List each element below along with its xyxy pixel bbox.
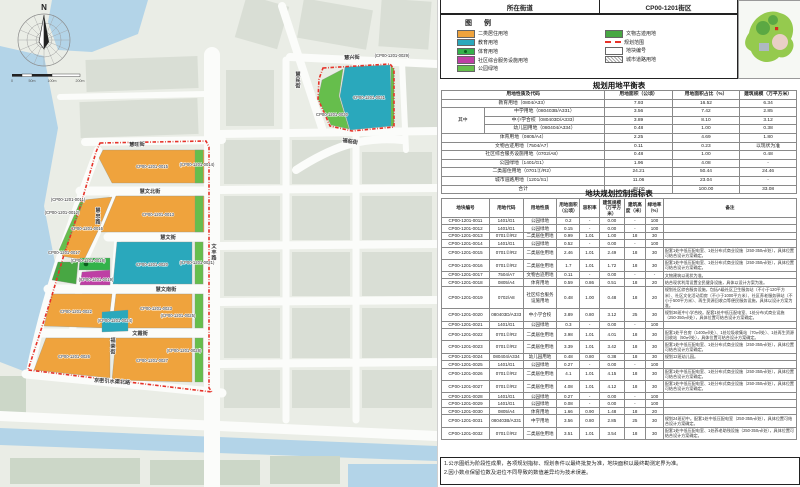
block-code-label: CP00-1201-0030 bbox=[316, 112, 349, 117]
block-code-label: CP00-1201-0031 bbox=[353, 95, 386, 100]
legend-swatch-icon bbox=[605, 56, 623, 64]
district-minimap bbox=[738, 0, 800, 79]
legend-swatch-icon bbox=[457, 48, 475, 56]
footnote-line: 1.公示图纸为阶段性成果，各项规划指标、规划条件以最终批复为准，地块面积以最终勘… bbox=[444, 460, 796, 469]
block-code-label: (CP00-1201-0019) bbox=[79, 277, 114, 282]
balance-table: 用地性质及代码用地面积（公顷）用地面积占比（%）建筑规模（万平方米）教育用地（0… bbox=[441, 90, 797, 194]
table-row: CP00-1201-00320701②/R2二类居住用地3.511.013.54… bbox=[442, 427, 797, 439]
legend-label: 规划范围 bbox=[624, 39, 644, 46]
table-row: CP00-1201-00177504/A7文物古迹用地0.11-0.00--文物… bbox=[442, 271, 797, 279]
legend-label: 社区综合服务设施用地 bbox=[478, 57, 528, 64]
legend-item: 体育用地 bbox=[457, 48, 589, 56]
planning-sheet: N 050m100m200m 慧旺街慧文北街慧文街慧文南街文霞街京密引水渠北路文… bbox=[0, 0, 800, 487]
legend: 图 例 二类居住用地教育用地体育用地社区综合服务设施用地公园绿地 文物古迹用地规… bbox=[440, 14, 738, 79]
table-row: CP00-1201-00130701②/R2二类居住用地0.991.011.00… bbox=[442, 232, 797, 240]
table-row: CP00-1201-00300805/A4体育用地1.660.901.48182… bbox=[442, 407, 797, 415]
street-office-cell: 所在街道 bbox=[441, 0, 600, 13]
street-label: 慧忠路 bbox=[95, 206, 101, 226]
legend-item: 社区综合服务设施用地 bbox=[457, 56, 589, 64]
block-code-label: (CP00-1201-0029) bbox=[375, 53, 410, 58]
table-row: CP00-1201-00111401/G1公园绿地0.2-0.00-100 bbox=[442, 217, 797, 225]
sheet-header: 所在街道 CP00-1201街区 bbox=[440, 0, 738, 14]
zoning-map: N 050m100m200m 慧旺街慧文北街慧文街慧文南街文霞街京密引水渠北路文… bbox=[0, 0, 437, 487]
legend-title: 图 例 bbox=[465, 18, 737, 28]
street-label: 文霞街 bbox=[132, 329, 148, 337]
block-code-label: (CP00-1201-0018) bbox=[71, 258, 106, 263]
block-code-label: CP00-1201-0017 bbox=[48, 250, 81, 255]
legend-label: 教育用地 bbox=[478, 39, 498, 46]
table-row: 体育用地（0805/A4）2.254.691.80 bbox=[442, 133, 797, 142]
scale-label: 200m bbox=[76, 79, 85, 83]
legend-item: 教育用地 bbox=[457, 39, 589, 47]
legend-swatch-icon bbox=[457, 56, 475, 64]
legend-item: 文物古迹用地 bbox=[605, 30, 737, 38]
legend-item: 地块编号 bbox=[605, 47, 737, 55]
table-row: 文物古迹用地（7504/A7）0.110.23以现状为准 bbox=[442, 142, 797, 151]
block-code-cell: CP00-1201街区 bbox=[600, 0, 737, 13]
table-header-row: 地块编号用地代码用地性质用地面积（公顷）容积率建筑规模（万平方米）建筑高度（米）… bbox=[442, 199, 797, 218]
table-row: 社区综合服务设施用地（0702/A8）0.481.000.48 bbox=[442, 151, 797, 160]
legend-swatch-icon bbox=[605, 30, 623, 38]
legend-column-right: 文物古迹用地规划范围地块编号城市道路用地 bbox=[589, 29, 737, 72]
table-row: 城市道路用地（1201/S1）11.0623.04- bbox=[442, 176, 797, 185]
table-row: CP00-1201-0024080404/A334幼儿园用地0.480.800.… bbox=[442, 353, 797, 361]
block-code-label: (CP00-1201-0014) bbox=[180, 162, 215, 167]
scale-label: 100m bbox=[48, 79, 57, 83]
compass-n-label: N bbox=[41, 3, 47, 12]
legend-swatch-icon bbox=[457, 65, 475, 73]
table-row: CP00-1201-00220701②/R2二类居住用地3.981.014.01… bbox=[442, 329, 797, 341]
info-panel: 所在街道 CP00-1201街区 图 例 二类居住用地教育用地体育用地社区综合服… bbox=[437, 0, 800, 487]
block-code-label: (CP00-1201-0011) bbox=[51, 197, 86, 202]
scale-label: 0 bbox=[11, 79, 13, 83]
legend-column-left: 二类居住用地教育用地体育用地社区综合服务设施用地公园绿地 bbox=[441, 29, 589, 72]
legend-label: 公园绿地 bbox=[478, 65, 498, 72]
legend-swatch-icon bbox=[605, 41, 621, 43]
table-row: CP00-1201-00291401/G1公园绿地0.08-0.00-100 bbox=[442, 400, 797, 408]
legend-item: 规划范围 bbox=[605, 39, 737, 46]
table-row: CP00-1201-0020080403D/A333中小学合校3.890.803… bbox=[442, 309, 797, 321]
scale-bar bbox=[12, 74, 80, 77]
table-row: CP00-1201-00180805/A4体育用地0.590.860.51182… bbox=[442, 279, 797, 287]
table-row: 公园绿地（1401/G1）1.964.08- bbox=[442, 159, 797, 168]
legend-item: 城市道路用地 bbox=[605, 56, 737, 64]
block-code-label: CP00-1201-0023 bbox=[140, 306, 173, 311]
legend-swatch-icon bbox=[605, 47, 623, 55]
block-code-label: (CP00-1201-0028) bbox=[167, 348, 202, 353]
table-row: 教育用地（0804/A33）7.9316.526.34 bbox=[442, 99, 797, 108]
table-row: CP00-1201-00160701②/R2二类居住用地1.71.011.721… bbox=[442, 259, 797, 271]
block-code-label: (CP00-1201-0025) bbox=[161, 313, 196, 318]
scale-label: 50m bbox=[29, 79, 36, 83]
table-row: CP00-1201-00270701②/R2二类居住用地4.081.014.12… bbox=[442, 380, 797, 392]
table-row: CP00-1201-00260701②/R2二类居住用地4.11.014.151… bbox=[442, 368, 797, 380]
legend-label: 体育用地 bbox=[478, 48, 498, 55]
block-code-label: CP00-1201-0022 bbox=[60, 309, 93, 314]
legend-label: 城市道路用地 bbox=[626, 56, 656, 63]
table-row: CP00-1201-00251401/G1公园绿地0.27-0.00-100 bbox=[442, 361, 797, 369]
street-label: 文丰路 bbox=[211, 242, 217, 262]
block-code-label: CP00-1201-0020 bbox=[136, 262, 169, 267]
table-row: CP00-1201-00230701②/R2二类居住用地3.391.013.42… bbox=[442, 341, 797, 353]
table-row: CP00-1201-00281401/G1公园绿地0.27-0.00-100 bbox=[442, 392, 797, 400]
legend-label: 文物古迹用地 bbox=[626, 30, 656, 37]
block-code-label: CP00-1201-0013 bbox=[142, 212, 175, 217]
footnotes: 1.公示图纸为阶段性成果，各项规划指标、规划条件以最终批复为准，地块面积以最终勘… bbox=[440, 457, 800, 485]
street-label: 慧民街 bbox=[294, 70, 301, 90]
block-code-label: CP00-1201-0016 bbox=[71, 226, 104, 231]
block-code-label: (CP00-1201-0021) bbox=[180, 260, 215, 265]
street-label: 慧文街 bbox=[160, 233, 176, 241]
street-label: 福荣街 bbox=[109, 336, 116, 356]
table-row: CP00-1201-00211401/G1公园绿地0.3-0.00-100 bbox=[442, 321, 797, 329]
table-row: CP00-1201-00121401/G1公园绿地0.15-0.00-100 bbox=[442, 225, 797, 233]
block-code-label: CP00-1201-0027 bbox=[136, 358, 169, 363]
block-code-label: (CP00-1201-0012) bbox=[45, 210, 80, 215]
control-table: 地块编号用地代码用地性质用地面积（公顷）容积率建筑规模（万平方米）建筑高度（米）… bbox=[441, 198, 797, 440]
block-code-label: CP00-1201-0015 bbox=[136, 164, 169, 169]
street-label: 慧文北街 bbox=[140, 187, 162, 195]
minimap-location-marker bbox=[775, 27, 778, 30]
table-row: CP00-1201-00150701②/R2二类居住用地2.461.012.49… bbox=[442, 247, 797, 259]
legend-swatch-icon bbox=[457, 39, 475, 47]
table-row: CP00-1201-00141401/G1公园绿地0.52-0.00-100 bbox=[442, 240, 797, 248]
table-header-row: 用地性质及代码用地面积（公顷）用地面积占比（%）建筑规模（万平方米） bbox=[442, 91, 797, 100]
block-code-label: (CP00-1201-0024) bbox=[98, 318, 133, 323]
legend-item: 公园绿地 bbox=[457, 65, 589, 73]
table-row: 其中中学用地（080403B/A331）3.567.422.85 bbox=[442, 108, 797, 117]
table-row: CP00-1201-0031080403B/A331中学用地3.560.802.… bbox=[442, 415, 797, 427]
table-row: 二类居住用地（0701②/R2）24.2150.4424.46 bbox=[442, 168, 797, 177]
block-code-label: CP00-1201-0026 bbox=[58, 354, 91, 359]
legend-item: 二类居住用地 bbox=[457, 30, 589, 38]
table-row: 中小学合校（080403D/A333）3.898.103.12 bbox=[442, 116, 797, 125]
legend-swatch-icon bbox=[457, 30, 475, 38]
table-row: 幼儿园用地（080404/A334）0.481.000.38 bbox=[442, 125, 797, 134]
street-label: 慧文南街 bbox=[156, 285, 178, 293]
legend-label: 二类居住用地 bbox=[478, 30, 508, 37]
footnote-line: 2.因小数点保留位数及进位不同导致的数值差异均为技术误差。 bbox=[444, 469, 796, 478]
table-row: CP00-1201-00190702/A8社区综合服务设施用地0.481.000… bbox=[442, 286, 797, 308]
legend-label: 地块编号 bbox=[626, 47, 646, 54]
